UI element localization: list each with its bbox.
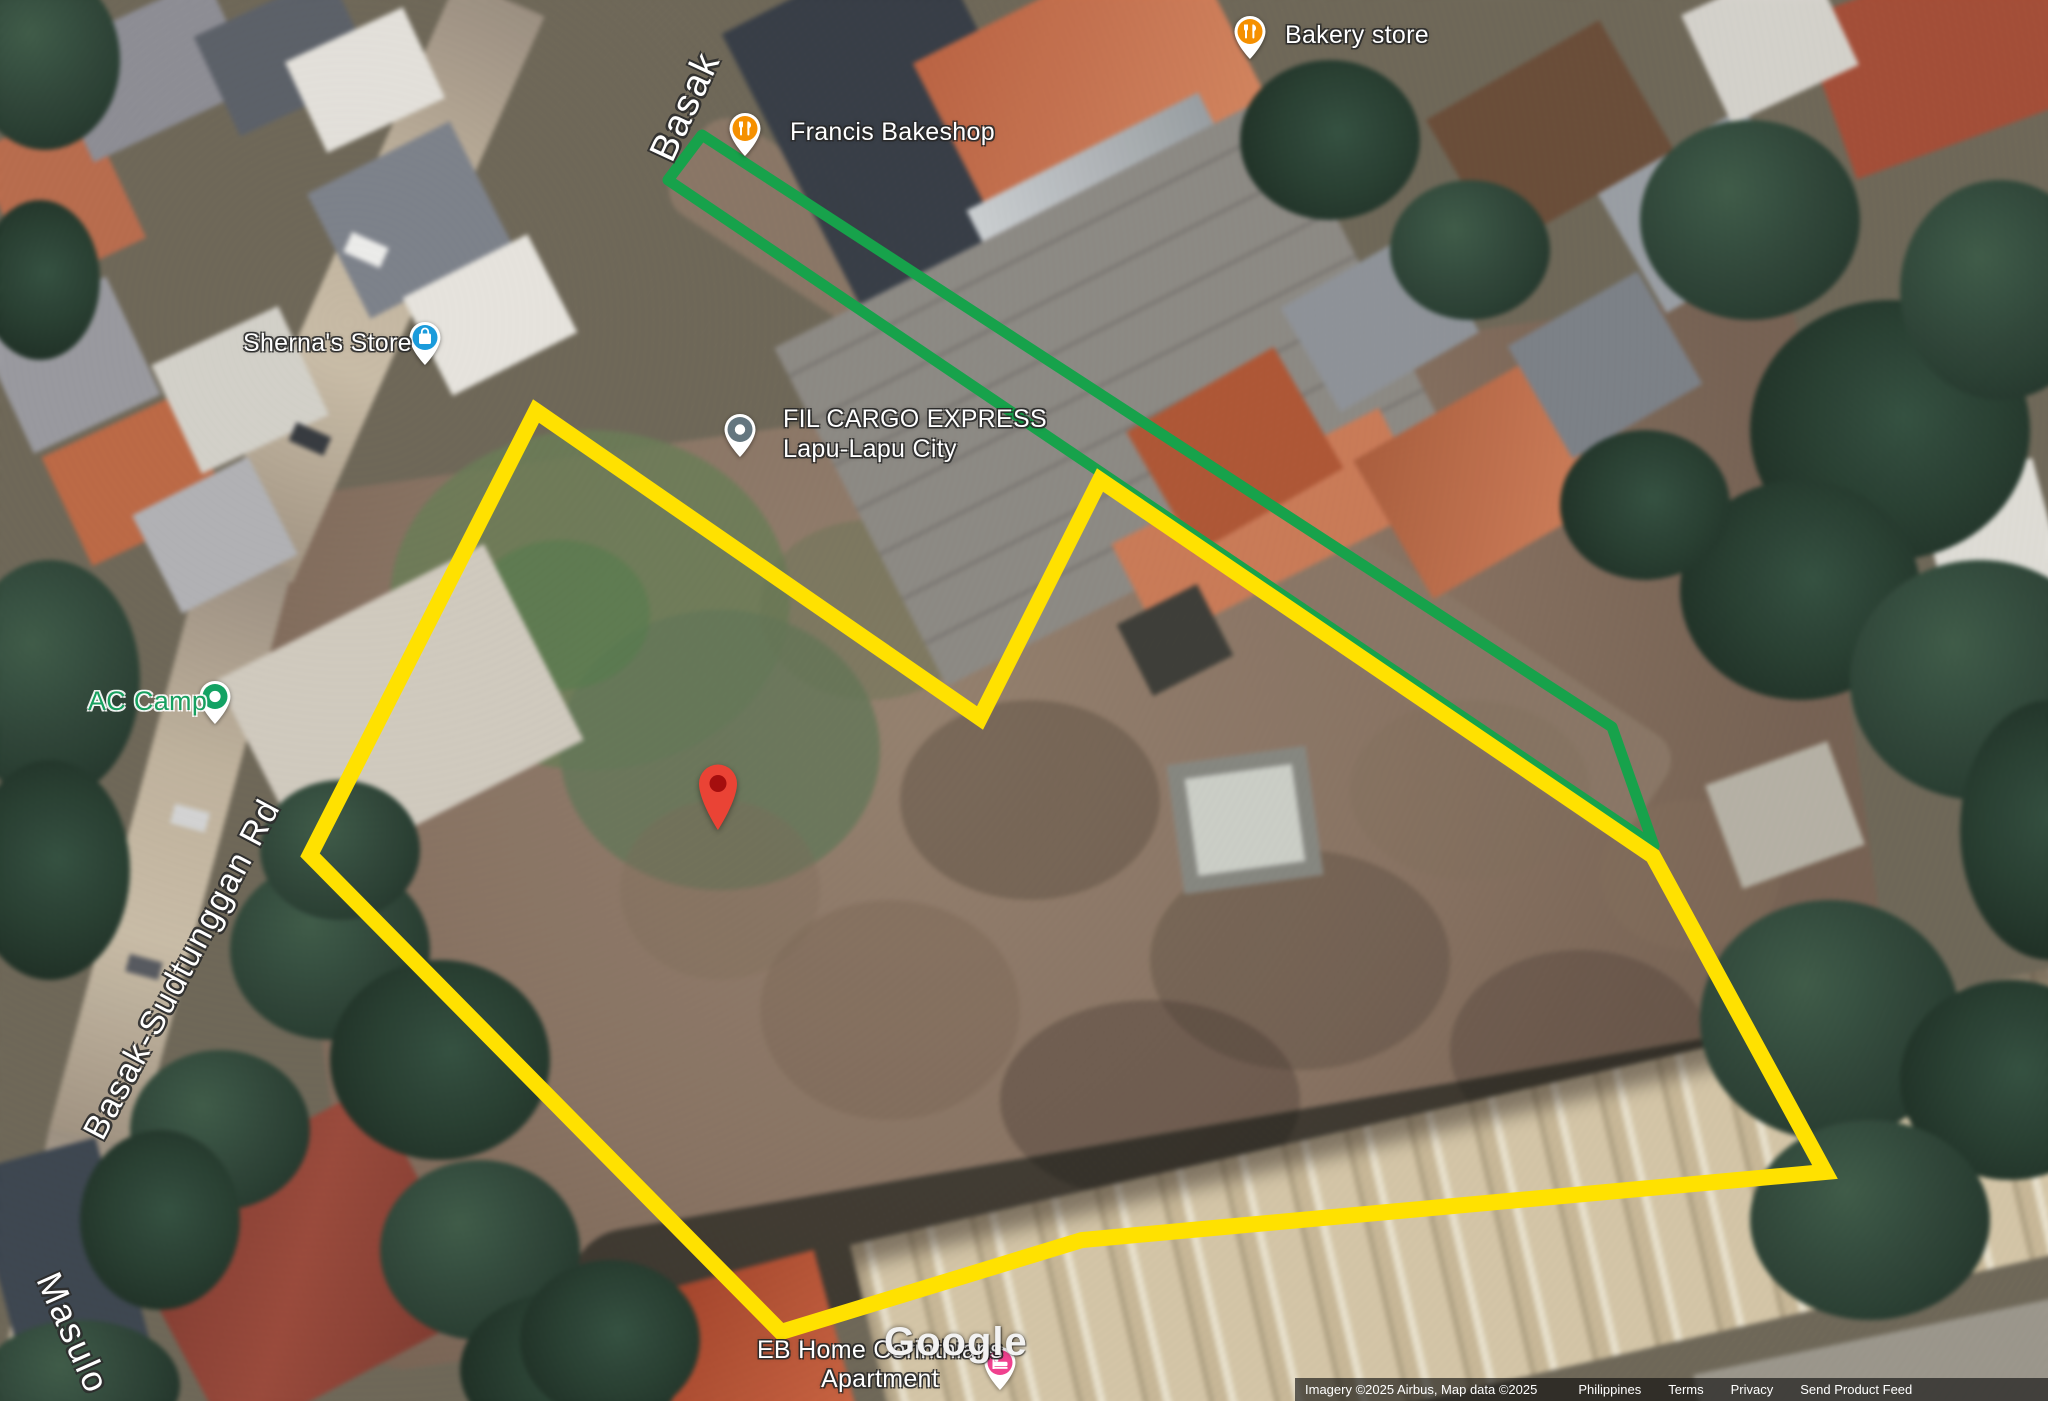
map-view: Bakery store Francis Bakeshop Sherna's S… bbox=[0, 0, 2048, 1401]
francis-bakeshop-pin-icon[interactable] bbox=[725, 111, 765, 157]
bakery-store-pin-icon[interactable] bbox=[1230, 14, 1270, 60]
google-logo[interactable]: Google bbox=[884, 1320, 1028, 1365]
attribution-bar: Imagery ©2025 Airbus, Map data ©2025 Phi… bbox=[1295, 1378, 2048, 1401]
location-marker-pin[interactable] bbox=[694, 762, 742, 832]
region-label: Philippines bbox=[1578, 1382, 1641, 1397]
green-strip-outline bbox=[668, 135, 1654, 846]
imagery-credit: Imagery ©2025 Airbus, Map data ©2025 bbox=[1305, 1382, 1537, 1397]
poi-label-fil-cargo[interactable]: FIL CARGO EXPRESS Lapu-Lapu City bbox=[783, 404, 1047, 464]
poi-label-shernas-store[interactable]: Sherna's Store bbox=[243, 329, 412, 358]
dot-icon bbox=[735, 424, 745, 434]
poi-label-francis-bakeshop[interactable]: Francis Bakeshop bbox=[790, 118, 995, 147]
poi-label-bakery-store[interactable]: Bakery store bbox=[1285, 21, 1429, 50]
poi-label-ac-camp[interactable]: AC Camp bbox=[88, 686, 207, 717]
send-feedback-link[interactable]: Send Product Feed bbox=[1800, 1382, 1912, 1397]
terms-link[interactable]: Terms bbox=[1668, 1382, 1703, 1397]
dot-icon bbox=[209, 691, 220, 702]
poi-label-fil-cargo-line2: Lapu-Lapu City bbox=[783, 434, 1047, 464]
poi-label-eb-home-line2: Apartment bbox=[745, 1365, 1015, 1394]
parcel-overlays bbox=[0, 0, 2048, 1401]
yellow-parcel-outline bbox=[310, 411, 1825, 1332]
poi-label-fil-cargo-line1: FIL CARGO EXPRESS bbox=[783, 404, 1047, 434]
privacy-link[interactable]: Privacy bbox=[1731, 1382, 1774, 1397]
fil-cargo-pin-icon[interactable] bbox=[720, 412, 760, 458]
